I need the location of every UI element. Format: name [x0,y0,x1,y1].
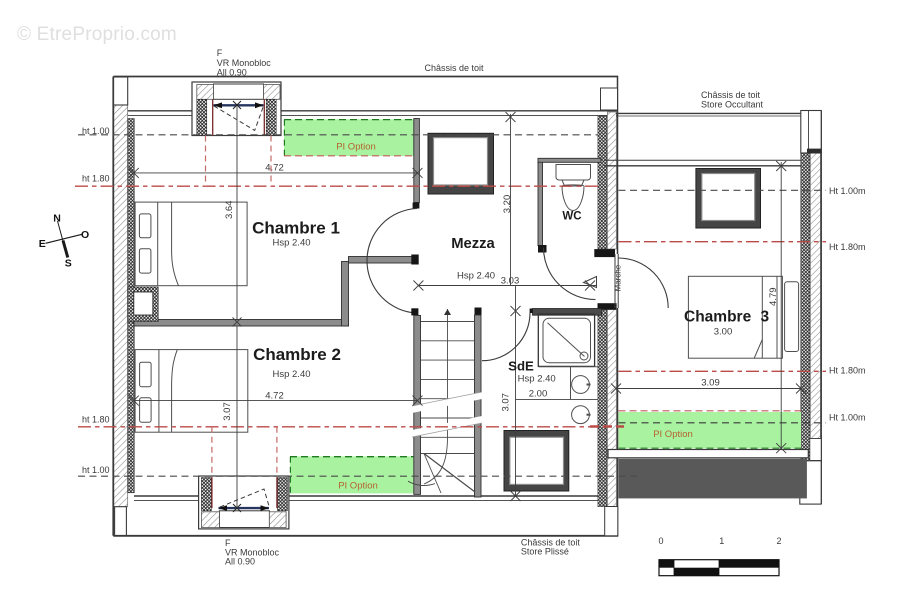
svg-text:2: 2 [776,536,781,546]
svg-text:2.00: 2.00 [529,389,548,400]
svg-text:Hsp 2.40: Hsp 2.40 [518,374,556,385]
svg-text:Store Occultant: Store Occultant [701,100,764,110]
svg-text:Store Plissé: Store Plissé [521,547,569,557]
svg-text:3.09: 3.09 [701,378,720,389]
svg-text:3.20: 3.20 [502,195,513,214]
svg-text:WC: WC [562,211,581,223]
svg-text:4.72: 4.72 [265,163,284,174]
svg-text:3.03: 3.03 [501,276,520,287]
svg-text:3.07: 3.07 [501,393,512,412]
svg-text:ht 1.80: ht 1.80 [82,414,110,424]
svg-text:Chambre 2: Chambre 2 [253,345,341,364]
svg-text:Hsp 2.40: Hsp 2.40 [272,238,310,249]
svg-text:Hsp 2.40: Hsp 2.40 [272,369,310,380]
svg-text:E: E [39,238,46,250]
svg-text:© EtreProprio.com: © EtreProprio.com [17,24,177,45]
svg-text:S: S [65,258,72,270]
svg-text:Chambre 1: Chambre 1 [252,219,340,238]
svg-text:3.64: 3.64 [224,201,235,220]
svg-text:1: 1 [719,536,724,546]
svg-text:Ht 1.80m: Ht 1.80m [829,366,866,376]
svg-text:O: O [81,229,89,241]
svg-text:4.79: 4.79 [768,287,779,306]
svg-text:N: N [53,213,61,225]
svg-text:Ht 1.00m: Ht 1.00m [829,413,866,423]
svg-text:F: F [217,48,223,58]
svg-text:PI Option: PI Option [653,429,693,440]
svg-text:3.07: 3.07 [222,402,233,421]
svg-text:SdE: SdE [508,359,534,374]
svg-text:Hsp 2.40: Hsp 2.40 [457,271,495,282]
svg-text:F: F [225,538,231,548]
svg-text:4.72: 4.72 [265,391,284,402]
svg-text:ht 1.00: ht 1.00 [82,126,110,136]
svg-text:Châssis de toit: Châssis de toit [424,63,484,73]
svg-text:Ht 1.80m: Ht 1.80m [829,242,866,252]
svg-text:Mezza: Mezza [451,236,495,252]
svg-text:3.00: 3.00 [714,327,733,338]
svg-text:ht 1.80: ht 1.80 [82,174,110,184]
svg-text:All 0.90: All 0.90 [217,68,247,78]
svg-text:All 0.90: All 0.90 [225,557,255,567]
svg-text:VR Monobloc: VR Monobloc [217,58,272,68]
svg-text:PI Option: PI Option [336,142,376,153]
svg-text:Ht 1.00m: Ht 1.00m [829,186,866,196]
svg-text:Chambre 3: Chambre 3 [684,309,769,326]
svg-text:Châssis de toit: Châssis de toit [701,90,761,100]
svg-text:Marche: Marche [614,264,623,291]
svg-text:ht 1.00: ht 1.00 [82,465,110,475]
svg-text:0: 0 [658,536,663,546]
svg-text:PI Option: PI Option [338,480,378,491]
